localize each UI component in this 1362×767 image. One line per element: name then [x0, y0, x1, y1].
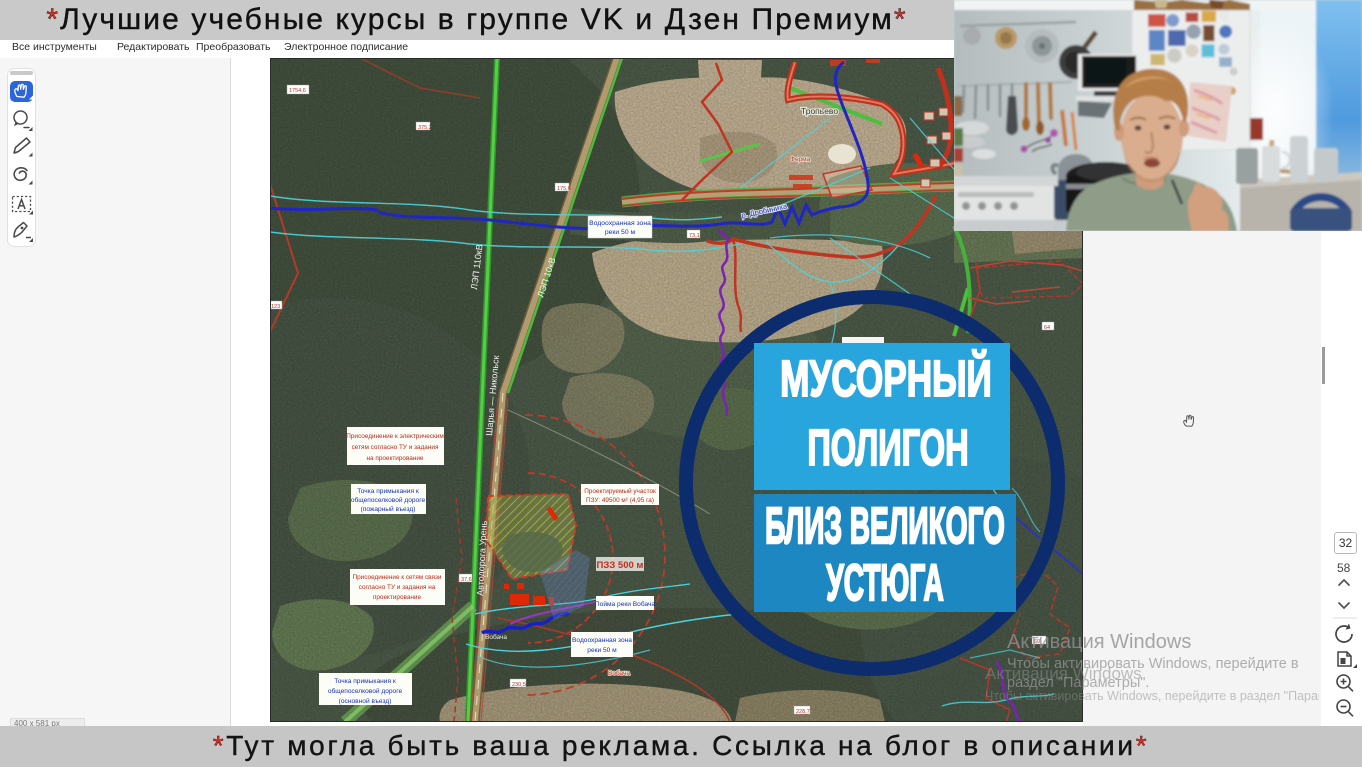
svg-text:сетям согласно ТУ и задания: сетям согласно ТУ и задания — [352, 444, 439, 451]
svg-text:Проектируемый участок: Проектируемый участок — [584, 487, 656, 495]
svg-text:БЛИЗ ВЕЛИКОГО: БЛИЗ ВЕЛИКОГО — [765, 497, 1005, 554]
svg-text:реки 50 м: реки 50 м — [605, 229, 636, 236]
svg-text:УСТЮГА: УСТЮГА — [826, 554, 943, 611]
svg-text:Вобача: Вобача — [485, 633, 507, 641]
svg-text:175,6: 175,6 — [557, 186, 571, 192]
svg-text:Присоединение к электрическим: Присоединение к электрическим — [346, 433, 444, 440]
svg-text:Точка примыкания к: Точка примыкания к — [334, 678, 396, 685]
svg-text:73,1: 73,1 — [689, 233, 700, 239]
svg-text:1754,6: 1754,6 — [289, 88, 306, 94]
svg-text:Водоохранная зона: Водоохранная зона — [572, 637, 632, 644]
svg-text:Ферма: Ферма — [790, 156, 811, 163]
svg-text:ПЗУ: 49500 м² (4,95 га): ПЗУ: 49500 м² (4,95 га) — [586, 497, 654, 504]
svg-text:согласно ТУ и задания на: согласно ТУ и задания на — [359, 584, 436, 591]
svg-text:на проектирование: на проектирование — [367, 455, 424, 462]
svg-text:общепоселковой дороге: общепоселковой дороге — [328, 687, 403, 695]
svg-text:Водоохранная зона: Водоохранная зона — [589, 220, 651, 227]
svg-text:реки 50 м: реки 50 м — [587, 647, 617, 654]
svg-text:(основной въезд): (основной въезд) — [339, 697, 392, 705]
svg-text:МУСОРНЫЙ: МУСОРНЫЙ — [780, 348, 992, 407]
svg-text:123: 123 — [271, 304, 280, 310]
svg-text:Пойма реки Вобача: Пойма реки Вобача — [595, 600, 656, 608]
svg-text:230,5: 230,5 — [512, 682, 526, 688]
svg-text:375,2: 375,2 — [418, 125, 432, 131]
svg-text:ПОЛИГОН: ПОЛИГОН — [807, 420, 968, 477]
svg-text:проектирование: проектирование — [373, 594, 422, 601]
svg-text:Присоединение к сетям связи: Присоединение к сетям связи — [353, 574, 442, 581]
svg-text:ПЗЗ 500 м: ПЗЗ 500 м — [597, 560, 644, 571]
svg-text:64: 64 — [1044, 325, 1050, 331]
svg-text:Вобача: Вобача — [608, 669, 630, 677]
svg-text:(пожарный въезд): (пожарный въезд) — [361, 505, 416, 513]
svg-text:228,7: 228,7 — [796, 709, 810, 715]
svg-text:общепоселковой дороге: общепоселковой дороге — [351, 496, 426, 504]
svg-text:Тропьево: Тропьево — [801, 106, 838, 116]
svg-text:37,6: 37,6 — [461, 577, 472, 583]
svg-text:Точка примыкания к: Точка примыкания к — [357, 488, 419, 495]
